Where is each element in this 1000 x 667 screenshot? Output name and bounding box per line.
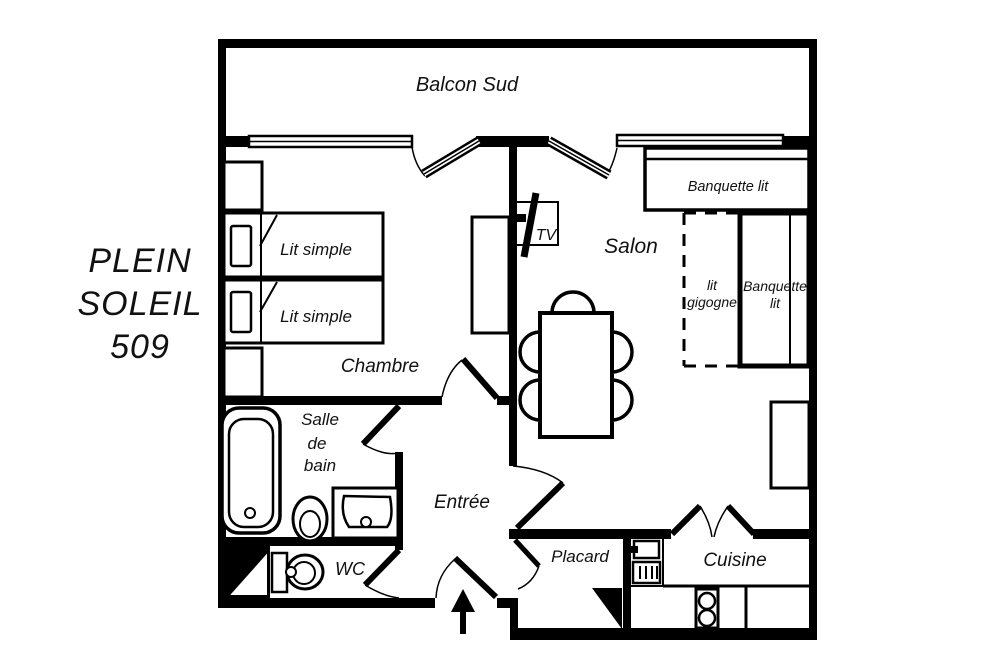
label-balcony: Balcon Sud [416, 74, 519, 96]
label-entry: Entrée [434, 492, 490, 513]
bathtub-icon [222, 408, 280, 533]
wc-door [365, 550, 399, 598]
wall-shelf [771, 402, 809, 488]
floor-plan-page: PLEIN SOLEIL 509 [0, 0, 1000, 667]
bedroom-window [249, 136, 412, 147]
door-leaf [455, 558, 496, 597]
toilet-icon [272, 553, 323, 592]
facade-stub-left [218, 136, 249, 147]
label-bathroom-line3: bain [304, 456, 336, 475]
label-bedroom: Chambre [341, 356, 419, 377]
apartment-title-line2: SOLEIL [55, 283, 225, 326]
door-leaf [463, 359, 497, 398]
label-kitchen: Cuisine [703, 550, 766, 571]
wardrobe-bottom-left [224, 348, 262, 397]
label-bathroom-line1: Salle [301, 410, 339, 429]
label-bench-bed-right-line1: Banquette [743, 278, 807, 294]
label-single-bed-2: Lit simple [280, 307, 352, 326]
door-arc [513, 466, 563, 483]
door-leaf [672, 506, 700, 534]
wardrobe-top-left [224, 162, 262, 210]
living-furniture [510, 148, 809, 488]
door-leaf [728, 506, 754, 534]
pillow-icon [231, 292, 251, 332]
label-wc: WC [335, 559, 366, 579]
duct-shaft-bathroom [218, 540, 270, 598]
french-door-right [549, 141, 617, 176]
wall-top [218, 39, 817, 48]
label-closet: Placard [551, 547, 609, 566]
bedroom-door [442, 359, 497, 398]
door-arc [714, 506, 728, 537]
fridge-icon [630, 538, 663, 586]
door-leaf [515, 540, 539, 566]
label-living: Salon [604, 235, 658, 258]
kitchen-swing-door [672, 506, 754, 537]
sink-icon [333, 488, 398, 538]
living-door [513, 466, 563, 528]
french-door-left [412, 141, 479, 176]
apartment-title-line3: 509 [55, 326, 225, 369]
chair-icon [552, 292, 594, 313]
stove-icon [696, 589, 718, 628]
living-window [617, 135, 783, 146]
door-arc [363, 444, 398, 454]
closet-door [515, 540, 539, 589]
door-arc [700, 506, 712, 537]
wc-fixtures [272, 553, 323, 592]
bathroom-door [363, 406, 399, 454]
label-tv: TV [536, 227, 558, 244]
duct-shaft-closet [592, 588, 622, 629]
wall-living-kitchen [753, 529, 817, 539]
facade-stub-right [783, 136, 809, 147]
dining-table [520, 292, 632, 437]
apartment-title: PLEIN SOLEIL 509 [55, 240, 225, 369]
door-leaf [363, 406, 399, 444]
apartment-title-line1: PLEIN [55, 240, 225, 283]
label-bathroom-line2: de [308, 434, 327, 453]
pillow-icon [231, 226, 251, 266]
wardrobe-right [472, 217, 509, 333]
wall-bottom-left [218, 598, 435, 608]
door-leaf [365, 550, 399, 585]
label-bench-bed-right-line2: lit [770, 295, 781, 311]
door-arc [442, 360, 462, 397]
chair-icon [520, 380, 540, 420]
door-arc [365, 585, 399, 598]
entrance-arrow-icon [451, 589, 475, 634]
entrance-door [436, 558, 496, 598]
door-leaf [517, 483, 563, 528]
label-trundle-line2: gigogne [687, 294, 737, 310]
wall-bedroom-door-jamb [497, 396, 517, 405]
chair-icon [612, 380, 632, 420]
chair-icon [612, 332, 632, 372]
label-bench-bed-top: Banquette lit [688, 179, 770, 195]
bidet-icon [293, 497, 327, 541]
door-arc [518, 566, 539, 589]
wall-bottom-right [510, 628, 817, 640]
door-arc [436, 559, 455, 598]
label-trundle-line1: lit [707, 277, 718, 293]
label-single-bed-1: Lit simple [280, 240, 352, 259]
chair-icon [520, 332, 540, 372]
tv-icon [510, 193, 558, 257]
